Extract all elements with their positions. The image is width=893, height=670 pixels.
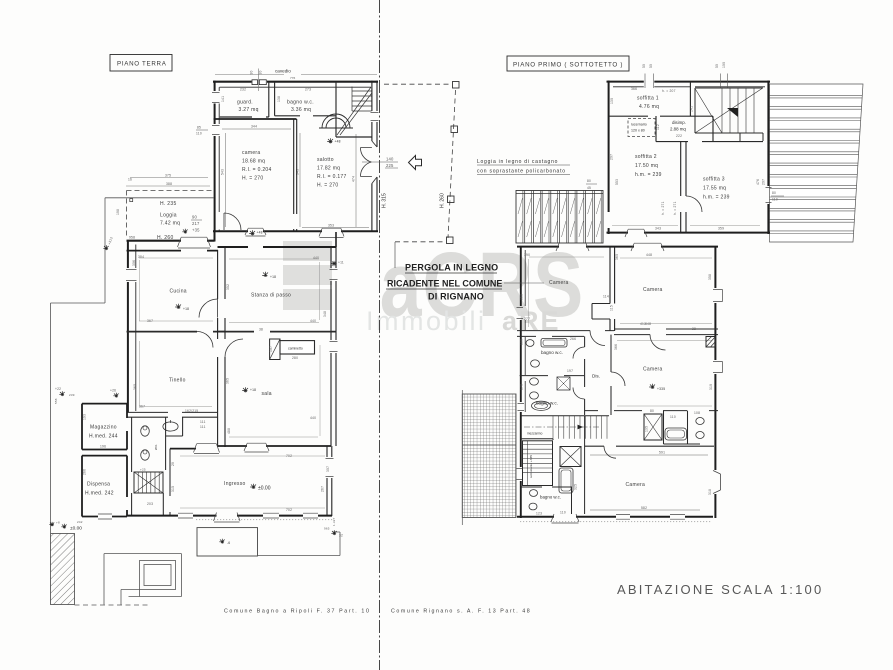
- svg-text:Camera: Camera: [643, 367, 663, 373]
- svg-text:ABITAZIONE SCALA 1:100: ABITAZIONE SCALA 1:100: [617, 582, 823, 597]
- svg-text:958: 958: [129, 236, 135, 240]
- svg-text:110: 110: [560, 511, 566, 515]
- svg-text:Comune Bagno a Ripoli F.: Comune Bagno a Ripoli F. 37 Part. 10: [224, 609, 371, 615]
- svg-text:±0.00: ±0.00: [258, 486, 271, 492]
- svg-text:bagno w.c.: bagno w.c.: [287, 100, 314, 106]
- svg-text:273: 273: [305, 88, 311, 92]
- svg-text:440: 440: [310, 416, 316, 420]
- svg-text:388: 388: [166, 182, 172, 186]
- svg-text:375: 375: [165, 174, 171, 178]
- svg-text:H. 260: H. 260: [440, 193, 446, 208]
- svg-text:543: 543: [221, 169, 225, 175]
- svg-text:80: 80: [650, 409, 654, 413]
- svg-text:108: 108: [694, 411, 700, 415]
- svg-text:h.m. = 239: h.m. = 239: [635, 172, 662, 178]
- svg-text:H. = 270: H. = 270: [242, 176, 263, 182]
- svg-text:+18: +18: [183, 307, 189, 311]
- svg-text:315: 315: [171, 486, 175, 492]
- svg-text:170: 170: [520, 384, 524, 390]
- svg-text:+26: +26: [110, 389, 116, 393]
- svg-text:PIANO TERRA: PIANO TERRA: [117, 61, 167, 68]
- svg-text:Camera: Camera: [643, 287, 663, 293]
- svg-text:232: 232: [240, 88, 246, 92]
- svg-text:412: 412: [640, 322, 646, 326]
- svg-text:17.55 mq: 17.55 mq: [703, 186, 726, 192]
- svg-text:107: 107: [269, 346, 273, 352]
- svg-text:Tinello: Tinello: [169, 378, 186, 384]
- svg-text:h. = 271: h. = 271: [661, 201, 665, 215]
- svg-text:+48: +48: [257, 231, 263, 235]
- svg-text:180: 180: [520, 339, 524, 345]
- svg-text:476: 476: [756, 179, 760, 185]
- svg-text:111: 111: [200, 425, 206, 429]
- svg-text:mezzanino: mezzanino: [527, 432, 543, 436]
- svg-text:390: 390: [524, 253, 530, 257]
- svg-text:aRE: aRE: [502, 306, 561, 336]
- svg-text:bagno w.c.: bagno w.c.: [540, 495, 561, 500]
- svg-text:H. 235: H. 235: [160, 201, 177, 207]
- svg-text:H. 315: H. 315: [382, 193, 388, 208]
- svg-text:115: 115: [610, 305, 614, 311]
- svg-text:123: 123: [536, 512, 542, 516]
- svg-text:7.42 mq: 7.42 mq: [160, 221, 180, 227]
- svg-text:114: 114: [603, 295, 609, 299]
- svg-text:soffitta 1: soffitta 1: [637, 96, 659, 102]
- svg-text:280: 280: [292, 356, 298, 360]
- svg-text:120 x 80: 120 x 80: [631, 129, 645, 133]
- svg-text:Dis.: Dis.: [592, 374, 600, 379]
- svg-text:343: 343: [296, 169, 300, 175]
- svg-text:217: 217: [192, 221, 200, 226]
- svg-text:141: 141: [221, 96, 225, 102]
- svg-text:80: 80: [772, 191, 776, 195]
- svg-text:366: 366: [614, 344, 618, 350]
- svg-text:caminetto: caminetto: [288, 347, 303, 351]
- svg-text:h.m. = 239: h.m. = 239: [703, 195, 730, 201]
- svg-text:salotto: salotto: [317, 157, 334, 163]
- svg-text:112: 112: [656, 124, 660, 130]
- svg-text:-6: -6: [227, 541, 230, 545]
- svg-text:R.I. = 0.177: R.I. = 0.177: [317, 174, 347, 180]
- svg-text:448: 448: [646, 253, 652, 257]
- svg-text:Comune Rignano s. A. F. 1: Comune Rignano s. A. F. 13 Part. 48: [391, 609, 531, 615]
- svg-text:353: 353: [328, 224, 334, 228]
- svg-text:360: 360: [133, 384, 137, 390]
- svg-text:RICADENTE NEL COMUNE: RICADENTE NEL COMUNE: [387, 279, 502, 289]
- svg-text:1.327: 1.327: [332, 517, 336, 526]
- svg-text:17.50 mq: 17.50 mq: [635, 163, 658, 169]
- svg-text:266: 266: [83, 469, 87, 475]
- svg-text:135: 135: [645, 426, 649, 432]
- svg-text:+8: +8: [56, 521, 60, 525]
- svg-text:267: 267: [321, 486, 325, 492]
- svg-text:16: 16: [128, 178, 132, 182]
- svg-text:Loggia: Loggia: [160, 213, 177, 219]
- svg-text:776: 776: [290, 76, 295, 80]
- svg-text:100: 100: [722, 62, 726, 68]
- svg-text:+48: +48: [335, 140, 341, 144]
- svg-text:4.76 mq: 4.76 mq: [639, 104, 659, 110]
- svg-text:H.med. 242: H.med. 242: [85, 491, 114, 497]
- svg-text:80: 80: [587, 179, 591, 183]
- svg-text:+22: +22: [55, 387, 61, 391]
- svg-text:H. = 270: H. = 270: [317, 183, 338, 189]
- svg-text:sala: sala: [262, 391, 272, 397]
- svg-text:+35: +35: [192, 228, 200, 233]
- svg-text:196: 196: [100, 445, 106, 449]
- svg-text:Immobili: Immobili: [366, 306, 487, 336]
- svg-text:225: 225: [386, 163, 394, 168]
- svg-text:306: 306: [132, 260, 136, 266]
- svg-text:18.68 mq: 18.68 mq: [242, 159, 265, 165]
- svg-text:R.I. = 0.204: R.I. = 0.204: [242, 167, 272, 173]
- svg-text:camera: camera: [242, 150, 260, 156]
- svg-text:110: 110: [670, 415, 676, 419]
- svg-text:591: 591: [659, 451, 665, 455]
- svg-text:130: 130: [610, 98, 614, 104]
- svg-text:cavedio: cavedio: [275, 69, 291, 74]
- svg-text:Ingresso: Ingresso: [224, 481, 246, 487]
- svg-text:38: 38: [692, 327, 696, 331]
- svg-text:45: 45: [587, 186, 591, 190]
- svg-text:Dispensa: Dispensa: [87, 482, 110, 488]
- svg-text:558: 558: [54, 398, 58, 404]
- svg-text:348: 348: [323, 311, 327, 317]
- svg-text:352: 352: [226, 284, 230, 290]
- svg-text:+18: +18: [250, 388, 256, 392]
- svg-text:guard.: guard.: [237, 100, 253, 106]
- svg-text:3.27 mq: 3.27 mq: [239, 107, 259, 113]
- svg-text:Camera: Camera: [626, 482, 646, 488]
- svg-text:474: 474: [352, 176, 356, 182]
- svg-text:PIANO PRIMO ( SOTTOTETTO ): PIANO PRIMO ( SOTTOTETTO ): [513, 62, 623, 69]
- svg-text:lucernario: lucernario: [631, 123, 647, 127]
- svg-text:222: 222: [676, 134, 682, 138]
- svg-text:PERGOLA IN LEGNO: PERGOLA IN LEGNO: [405, 263, 498, 273]
- svg-text:+18: +18: [270, 275, 276, 279]
- svg-text:soffitta 3: soffitta 3: [703, 177, 725, 183]
- svg-text:203: 203: [147, 502, 153, 506]
- svg-text:702: 702: [286, 508, 292, 512]
- svg-text:+11: +11: [338, 261, 344, 265]
- svg-text:Stanza di passo: Stanza di passo: [251, 293, 291, 299]
- svg-text:50: 50: [642, 64, 646, 68]
- svg-text:DI RIGNANO: DI RIGNANO: [428, 292, 484, 302]
- svg-text:110: 110: [772, 198, 778, 202]
- svg-text:365: 365: [226, 378, 230, 384]
- svg-text:50: 50: [649, 64, 653, 68]
- svg-text:con soprastante policarbonat: con soprastante policarbonato: [477, 169, 566, 175]
- svg-text:366: 366: [631, 87, 637, 91]
- svg-text:360: 360: [615, 254, 619, 260]
- svg-text:H.med. 244: H.med. 244: [89, 434, 118, 440]
- svg-text:319: 319: [709, 384, 713, 390]
- svg-text:Cucina: Cucina: [170, 289, 187, 295]
- svg-text:582: 582: [641, 506, 647, 510]
- svg-text:90: 90: [250, 70, 254, 74]
- svg-text:h. = 207: h. = 207: [662, 89, 676, 93]
- svg-text:162/215: 162/215: [185, 409, 198, 413]
- svg-text:+25: +25: [140, 468, 146, 472]
- svg-text:325: 325: [574, 484, 578, 490]
- svg-text:307: 307: [326, 466, 330, 472]
- svg-text:343: 343: [655, 227, 661, 231]
- svg-text:197: 197: [567, 369, 573, 373]
- svg-text:111: 111: [200, 420, 206, 424]
- svg-text:sottostante +335: sottostante +335: [529, 455, 533, 478]
- svg-text:soffitta 2: soffitta 2: [635, 154, 657, 160]
- svg-text:141: 141: [690, 106, 694, 112]
- svg-text:384: 384: [138, 255, 144, 259]
- svg-text:266: 266: [570, 337, 576, 341]
- svg-text:110: 110: [196, 132, 202, 136]
- svg-text:207: 207: [762, 179, 766, 185]
- svg-text:3.36 mq: 3.36 mq: [291, 107, 311, 113]
- svg-text:Camera: Camera: [549, 280, 569, 286]
- svg-text:198: 198: [116, 209, 120, 215]
- svg-text:553: 553: [615, 179, 619, 185]
- svg-text:207: 207: [610, 154, 614, 160]
- svg-text:138: 138: [277, 96, 281, 102]
- svg-text:488: 488: [227, 428, 231, 434]
- svg-text:277: 277: [524, 317, 530, 321]
- svg-text:Loggia in legno di castagn: Loggia in legno di castagno: [477, 159, 558, 165]
- svg-text:±0.00: ±0.00: [70, 526, 82, 532]
- svg-text:358: 358: [708, 274, 712, 280]
- svg-text:359: 359: [718, 227, 724, 231]
- svg-text:bagno w.c.: bagno w.c.: [541, 350, 563, 355]
- svg-text:32: 32: [339, 534, 343, 538]
- svg-text:+335: +335: [657, 387, 665, 391]
- svg-text:344: 344: [251, 125, 257, 129]
- svg-text:disimp.: disimp.: [672, 120, 686, 125]
- svg-text:242: 242: [77, 520, 83, 524]
- svg-text:17.82 mq: 17.82 mq: [317, 166, 340, 172]
- svg-text:29: 29: [171, 462, 175, 466]
- svg-text:Magazzino: Magazzino: [90, 425, 117, 431]
- svg-text:318: 318: [708, 489, 712, 495]
- svg-text:440: 440: [313, 256, 319, 260]
- svg-text:140: 140: [386, 157, 394, 162]
- svg-text:50: 50: [715, 64, 719, 68]
- svg-text:h. = 271: h. = 271: [673, 201, 677, 215]
- svg-text:965: 965: [324, 527, 330, 531]
- svg-text:2.88 mq: 2.88 mq: [670, 127, 686, 132]
- svg-text:193: 193: [83, 414, 87, 420]
- svg-text:38: 38: [259, 328, 263, 332]
- svg-text:85: 85: [197, 126, 201, 130]
- svg-text:30: 30: [259, 70, 263, 74]
- svg-text:w.c.: w.c.: [154, 444, 158, 450]
- svg-text:90: 90: [192, 215, 198, 220]
- svg-text:239: 239: [69, 393, 75, 397]
- svg-text:358: 358: [520, 294, 524, 300]
